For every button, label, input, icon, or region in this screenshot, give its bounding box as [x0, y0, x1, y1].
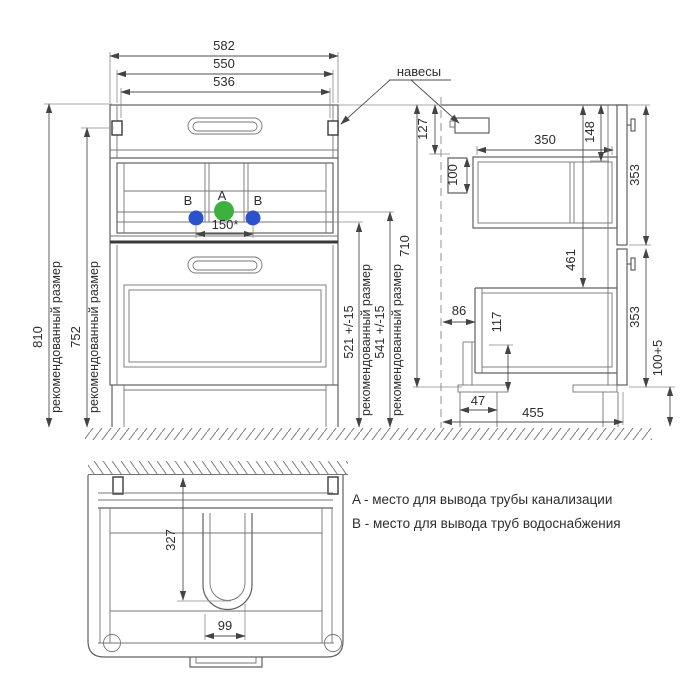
- siphon-cutout: [203, 513, 252, 610]
- dim-86-label: 86: [452, 303, 466, 318]
- dim-550-label: 550: [213, 56, 235, 71]
- dim-810-note: рекомендованный размер: [49, 261, 63, 413]
- front-view: [110, 105, 338, 427]
- dim-150-label: 150*: [212, 217, 239, 232]
- dim-541-label: 541 +/-15: [373, 305, 387, 358]
- hangers-callout-label: навесы: [397, 64, 441, 79]
- upper-drawer-front: [617, 105, 627, 245]
- bottom-drawer-handle: [188, 257, 262, 273]
- marker-b-right-label: B: [254, 193, 263, 208]
- pipe-b-left-marker: [189, 211, 204, 226]
- dim-521-note: рекомендованный размер: [359, 264, 373, 416]
- marker-a-label: A: [218, 188, 227, 203]
- legend: A - место для вывода трубы канализации B…: [352, 492, 621, 531]
- side-view: 100 127 350 148 353: [338, 64, 675, 428]
- cabinet-installation-drawing: A B B 582 550 536 810 рекомендованный ра…: [0, 0, 700, 700]
- dim-327-label: 327: [163, 529, 178, 551]
- hinge-right-icon: [328, 121, 338, 135]
- dim-541-note: рекомендованный размер: [390, 264, 404, 416]
- marker-b-left-label: B: [184, 193, 193, 208]
- hinge-left-bottom-icon: [113, 477, 123, 494]
- side-handle-top: [627, 119, 635, 131]
- lower-drawer-front: [617, 249, 627, 385]
- center-tab: [190, 657, 262, 667]
- side-handle-bottom: [627, 258, 635, 270]
- front-cabinet-body: [110, 105, 338, 385]
- dim-100-label: 100: [445, 164, 460, 186]
- dim-353-top-label: 353: [627, 164, 642, 186]
- dim-47-label: 47: [471, 393, 485, 408]
- dim-521-label: 521 +/-15: [342, 305, 356, 358]
- dim-148-label: 148: [582, 121, 597, 143]
- legend-line-b: B - место для вывода труб водоснабжения: [352, 516, 621, 531]
- upper-drawer-box: [473, 157, 617, 228]
- dim-100plus5-label: 100+5: [650, 340, 665, 377]
- dim-353-bottom-label: 353: [627, 306, 642, 328]
- wall-hatch: [88, 461, 348, 474]
- dim-752-label: 752: [68, 326, 83, 348]
- dim-582-label: 582: [213, 38, 235, 53]
- dim-117-label: 117: [489, 312, 504, 333]
- dim-350-label: 350: [534, 132, 556, 147]
- top-drawer-handle: [188, 118, 262, 134]
- dim-455-label: 455: [522, 405, 544, 420]
- bottom-view-outline: [88, 475, 343, 657]
- dim-536-label: 536: [213, 74, 235, 89]
- dim-752-note: рекомендованный размер: [87, 261, 101, 413]
- floor-hatch: [85, 428, 652, 440]
- dim-99-label: 99: [218, 618, 232, 633]
- legend-line-a: A - место для вывода трубы канализации: [352, 492, 612, 507]
- hinge-right-bottom-icon: [328, 477, 338, 494]
- dim-461-label: 461: [563, 249, 578, 271]
- dim-810-label: 810: [30, 326, 45, 348]
- technical-drawing-page: A B B 582 550 536 810 рекомендованный ра…: [0, 0, 700, 700]
- bottom-view: 327 99: [88, 461, 348, 667]
- pipe-b-right-marker: [246, 211, 261, 226]
- dim-710-label: 710: [397, 235, 412, 257]
